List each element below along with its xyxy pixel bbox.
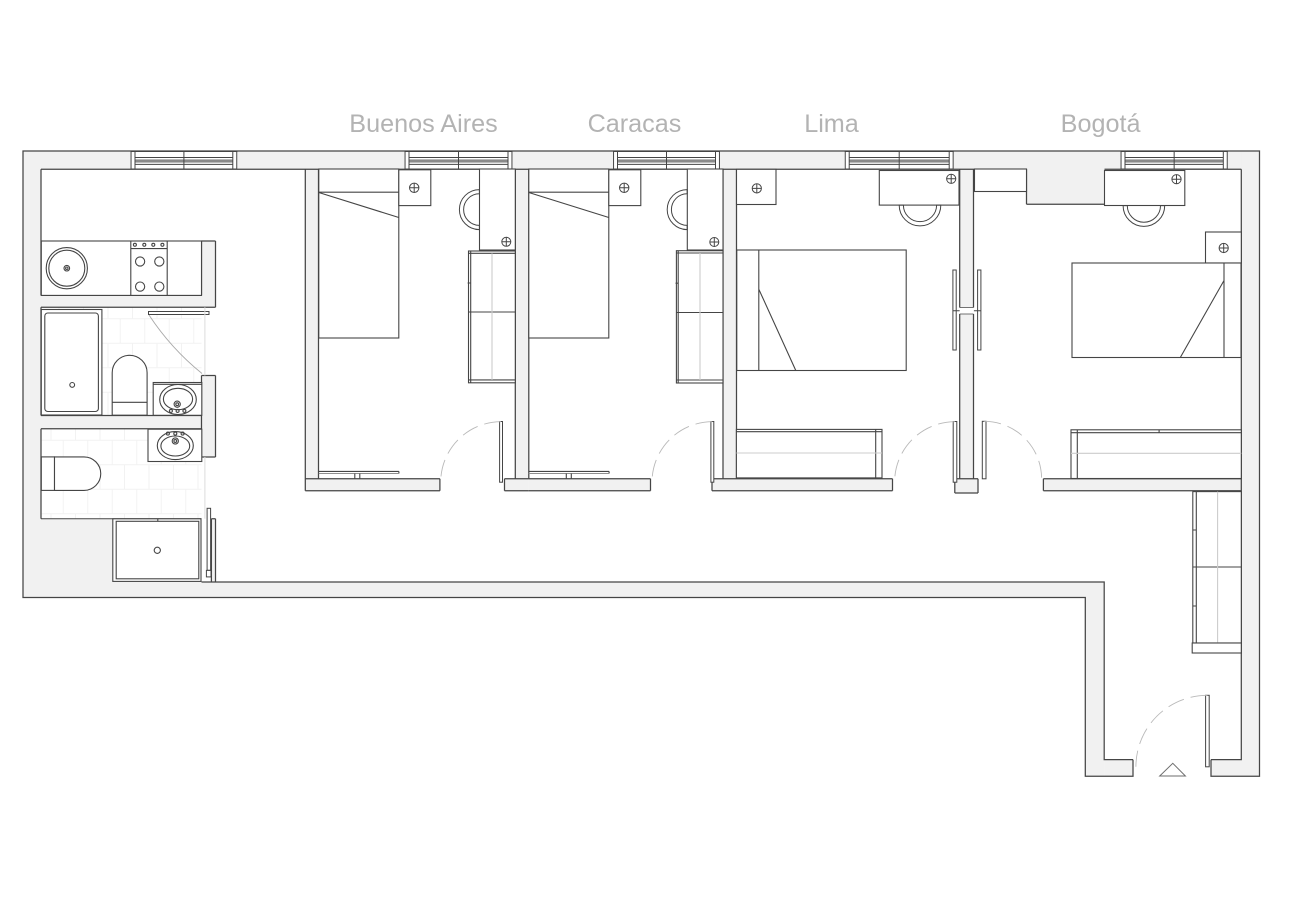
svg-text:Bogotá: Bogotá (1061, 110, 1142, 138)
svg-text:Buenos Aires: Buenos Aires (349, 110, 497, 138)
svg-text:Lima: Lima (804, 110, 860, 138)
svg-text:Caracas: Caracas (588, 110, 682, 138)
